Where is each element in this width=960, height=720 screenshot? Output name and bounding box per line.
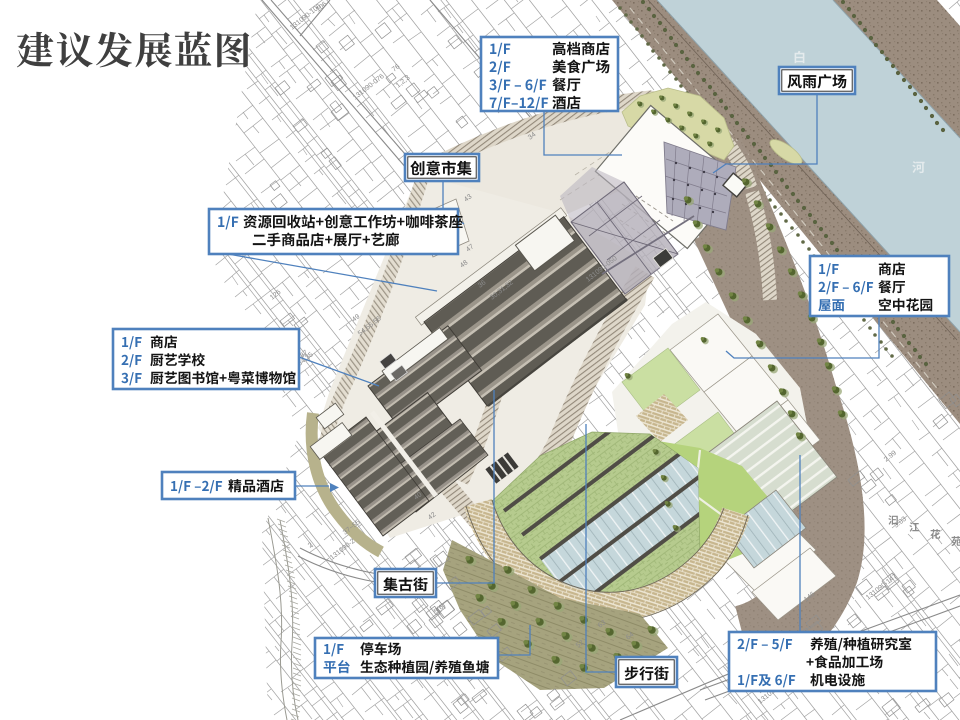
svg-text:106: 106 [315, 1, 329, 14]
svg-text:2: 2 [307, 542, 314, 550]
svg-text:131090-147: 131090-147 [865, 573, 899, 602]
svg-text:1,2,3: 1,2,3 [395, 74, 412, 89]
svg-text:2.99: 2.99 [883, 450, 898, 464]
svg-text:76: 76 [391, 63, 402, 73]
svg-text:3.03: 3.03 [893, 516, 908, 530]
